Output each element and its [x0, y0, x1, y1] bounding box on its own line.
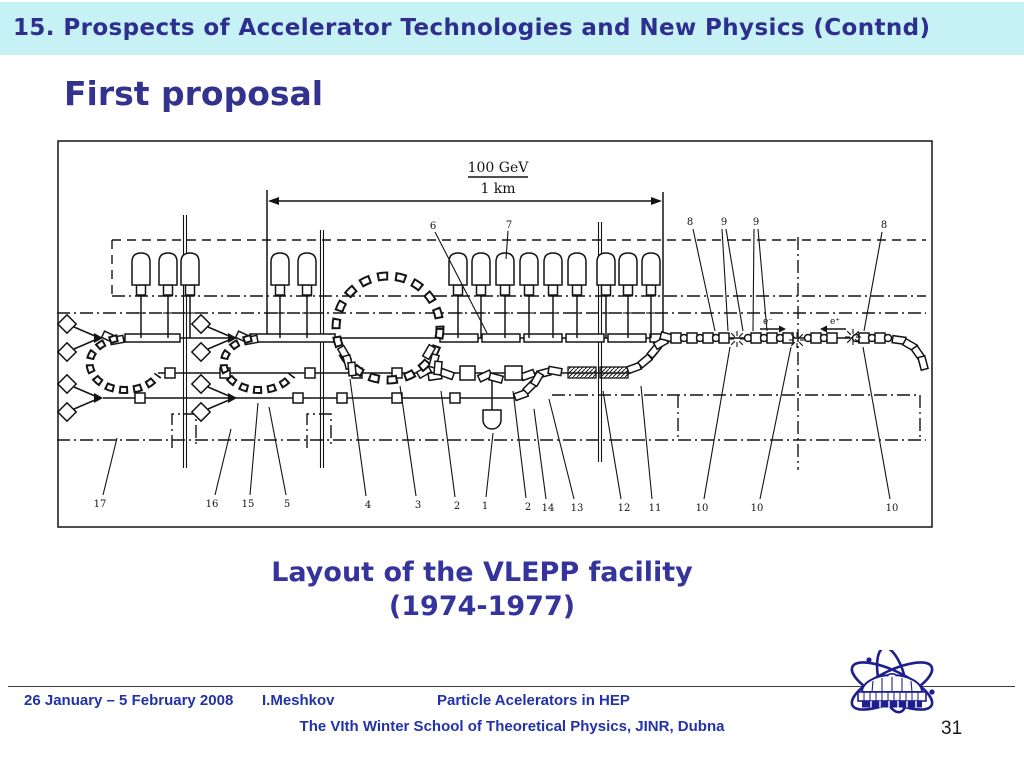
transfer-line-elements — [135, 337, 668, 429]
svg-text:15: 15 — [242, 499, 255, 510]
svg-text:11: 11 — [649, 503, 662, 514]
damping-ring — [336, 276, 442, 380]
scale-denominator: 1 km — [480, 181, 515, 197]
svg-text:16: 16 — [206, 499, 219, 510]
electron-gun-device — [483, 410, 501, 429]
scale-label: 100 GeV 1 km — [468, 160, 530, 197]
vlepp-facility-schematic: 100 GeV 1 km — [57, 137, 935, 535]
bottom-callouts: 17 16 15 5 4 3 2 1 2 14 13 — [94, 347, 899, 514]
page-number: 31 — [941, 718, 962, 740]
svg-text:9: 9 — [753, 217, 759, 228]
footer-date: 26 January – 5 February 2008 — [24, 692, 233, 709]
svg-text:17: 17 — [94, 499, 107, 510]
collision-point-icon — [789, 332, 805, 348]
svg-text:9: 9 — [721, 217, 727, 228]
collision-region: e⁻ e⁺ — [660, 317, 928, 370]
return-arcs — [90, 338, 292, 390]
svg-text:8: 8 — [687, 217, 693, 228]
jinr-logo-icon — [838, 650, 950, 724]
svg-text:10: 10 — [886, 503, 899, 514]
electron-beam-label: e⁻ — [763, 317, 773, 327]
jinr-logo — [838, 650, 950, 724]
svg-text:5: 5 — [284, 499, 290, 510]
svg-text:14: 14 — [542, 503, 555, 514]
svg-text:6: 6 — [430, 221, 436, 232]
svg-text:1: 1 — [482, 501, 488, 512]
svg-text:3: 3 — [415, 500, 421, 511]
svg-text:10: 10 — [751, 503, 764, 514]
page-title: 15. Prospects of Accelerator Technologie… — [13, 15, 930, 41]
svg-text:13: 13 — [571, 503, 584, 514]
header-bar: 15. Prospects of Accelerator Technologie… — [0, 2, 1024, 55]
caption-line2: (1974-1977) — [162, 590, 802, 624]
scale-numerator: 100 GeV — [468, 160, 530, 176]
slide-subtitle: First proposal — [64, 74, 323, 113]
slide: 15. Prospects of Accelerator Technologie… — [0, 0, 1024, 768]
footer-course: Particle Acelerators in HEP — [437, 692, 630, 709]
svg-text:7: 7 — [506, 220, 512, 231]
svg-text:10: 10 — [696, 503, 709, 514]
footer-author: I.Meshkov — [262, 692, 335, 709]
svg-text:8: 8 — [881, 220, 887, 231]
svg-text:2: 2 — [454, 501, 460, 512]
svg-text:12: 12 — [618, 503, 631, 514]
collision-point-icon — [729, 331, 745, 347]
svg-text:2: 2 — [525, 502, 531, 513]
synchrotron-building — [858, 674, 926, 708]
caption-line1: Layout of the VLEPP facility — [162, 556, 802, 590]
positron-beam-label: e⁺ — [830, 317, 840, 327]
vlepp-diagram: 100 GeV 1 km — [57, 137, 935, 535]
svg-text:4: 4 — [365, 500, 371, 511]
figure-caption: Layout of the VLEPP facility (1974-1977) — [162, 556, 802, 624]
